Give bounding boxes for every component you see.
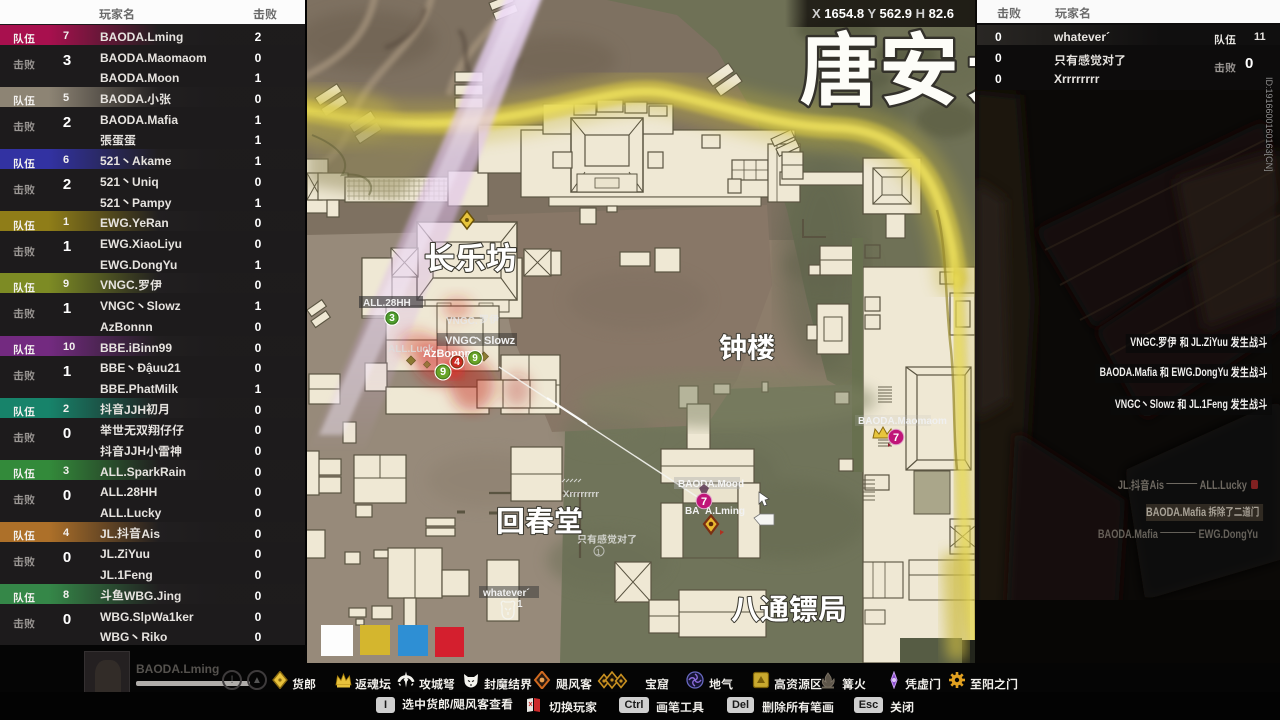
svg-text:AzBonnn: AzBonnn xyxy=(423,348,472,360)
svg-text:BA: BA xyxy=(685,506,699,517)
svg-text:ALL.28HH: ALL.28HH xyxy=(363,298,411,309)
svg-text:Slowz: Slowz xyxy=(484,335,516,347)
svg-text:4: 4 xyxy=(454,357,460,368)
svg-text:1: 1 xyxy=(596,548,601,557)
svg-text:7: 7 xyxy=(893,432,899,444)
svg-text:BAODA.Maomaom: BAODA.Maomaom xyxy=(858,416,947,427)
svg-text:9: 9 xyxy=(440,366,446,378)
svg-text:Xrrrrrrrr: Xrrrrrrrr xyxy=(563,489,599,500)
svg-text:3: 3 xyxy=(389,313,395,324)
svg-text:X 1654.8 Y 562.9 H 82.6: X 1654.8 Y 562.9 H 82.6 xyxy=(812,6,954,21)
svg-text:VNGC.: VNGC. xyxy=(446,316,478,327)
svg-text:9: 9 xyxy=(472,353,478,364)
svg-text:VNGC: VNGC xyxy=(445,335,477,347)
svg-text:1: 1 xyxy=(517,599,523,610)
svg-text:whatever´: whatever´ xyxy=(482,588,530,599)
svg-text:BAODA.Mood: BAODA.Mood xyxy=(678,479,744,490)
